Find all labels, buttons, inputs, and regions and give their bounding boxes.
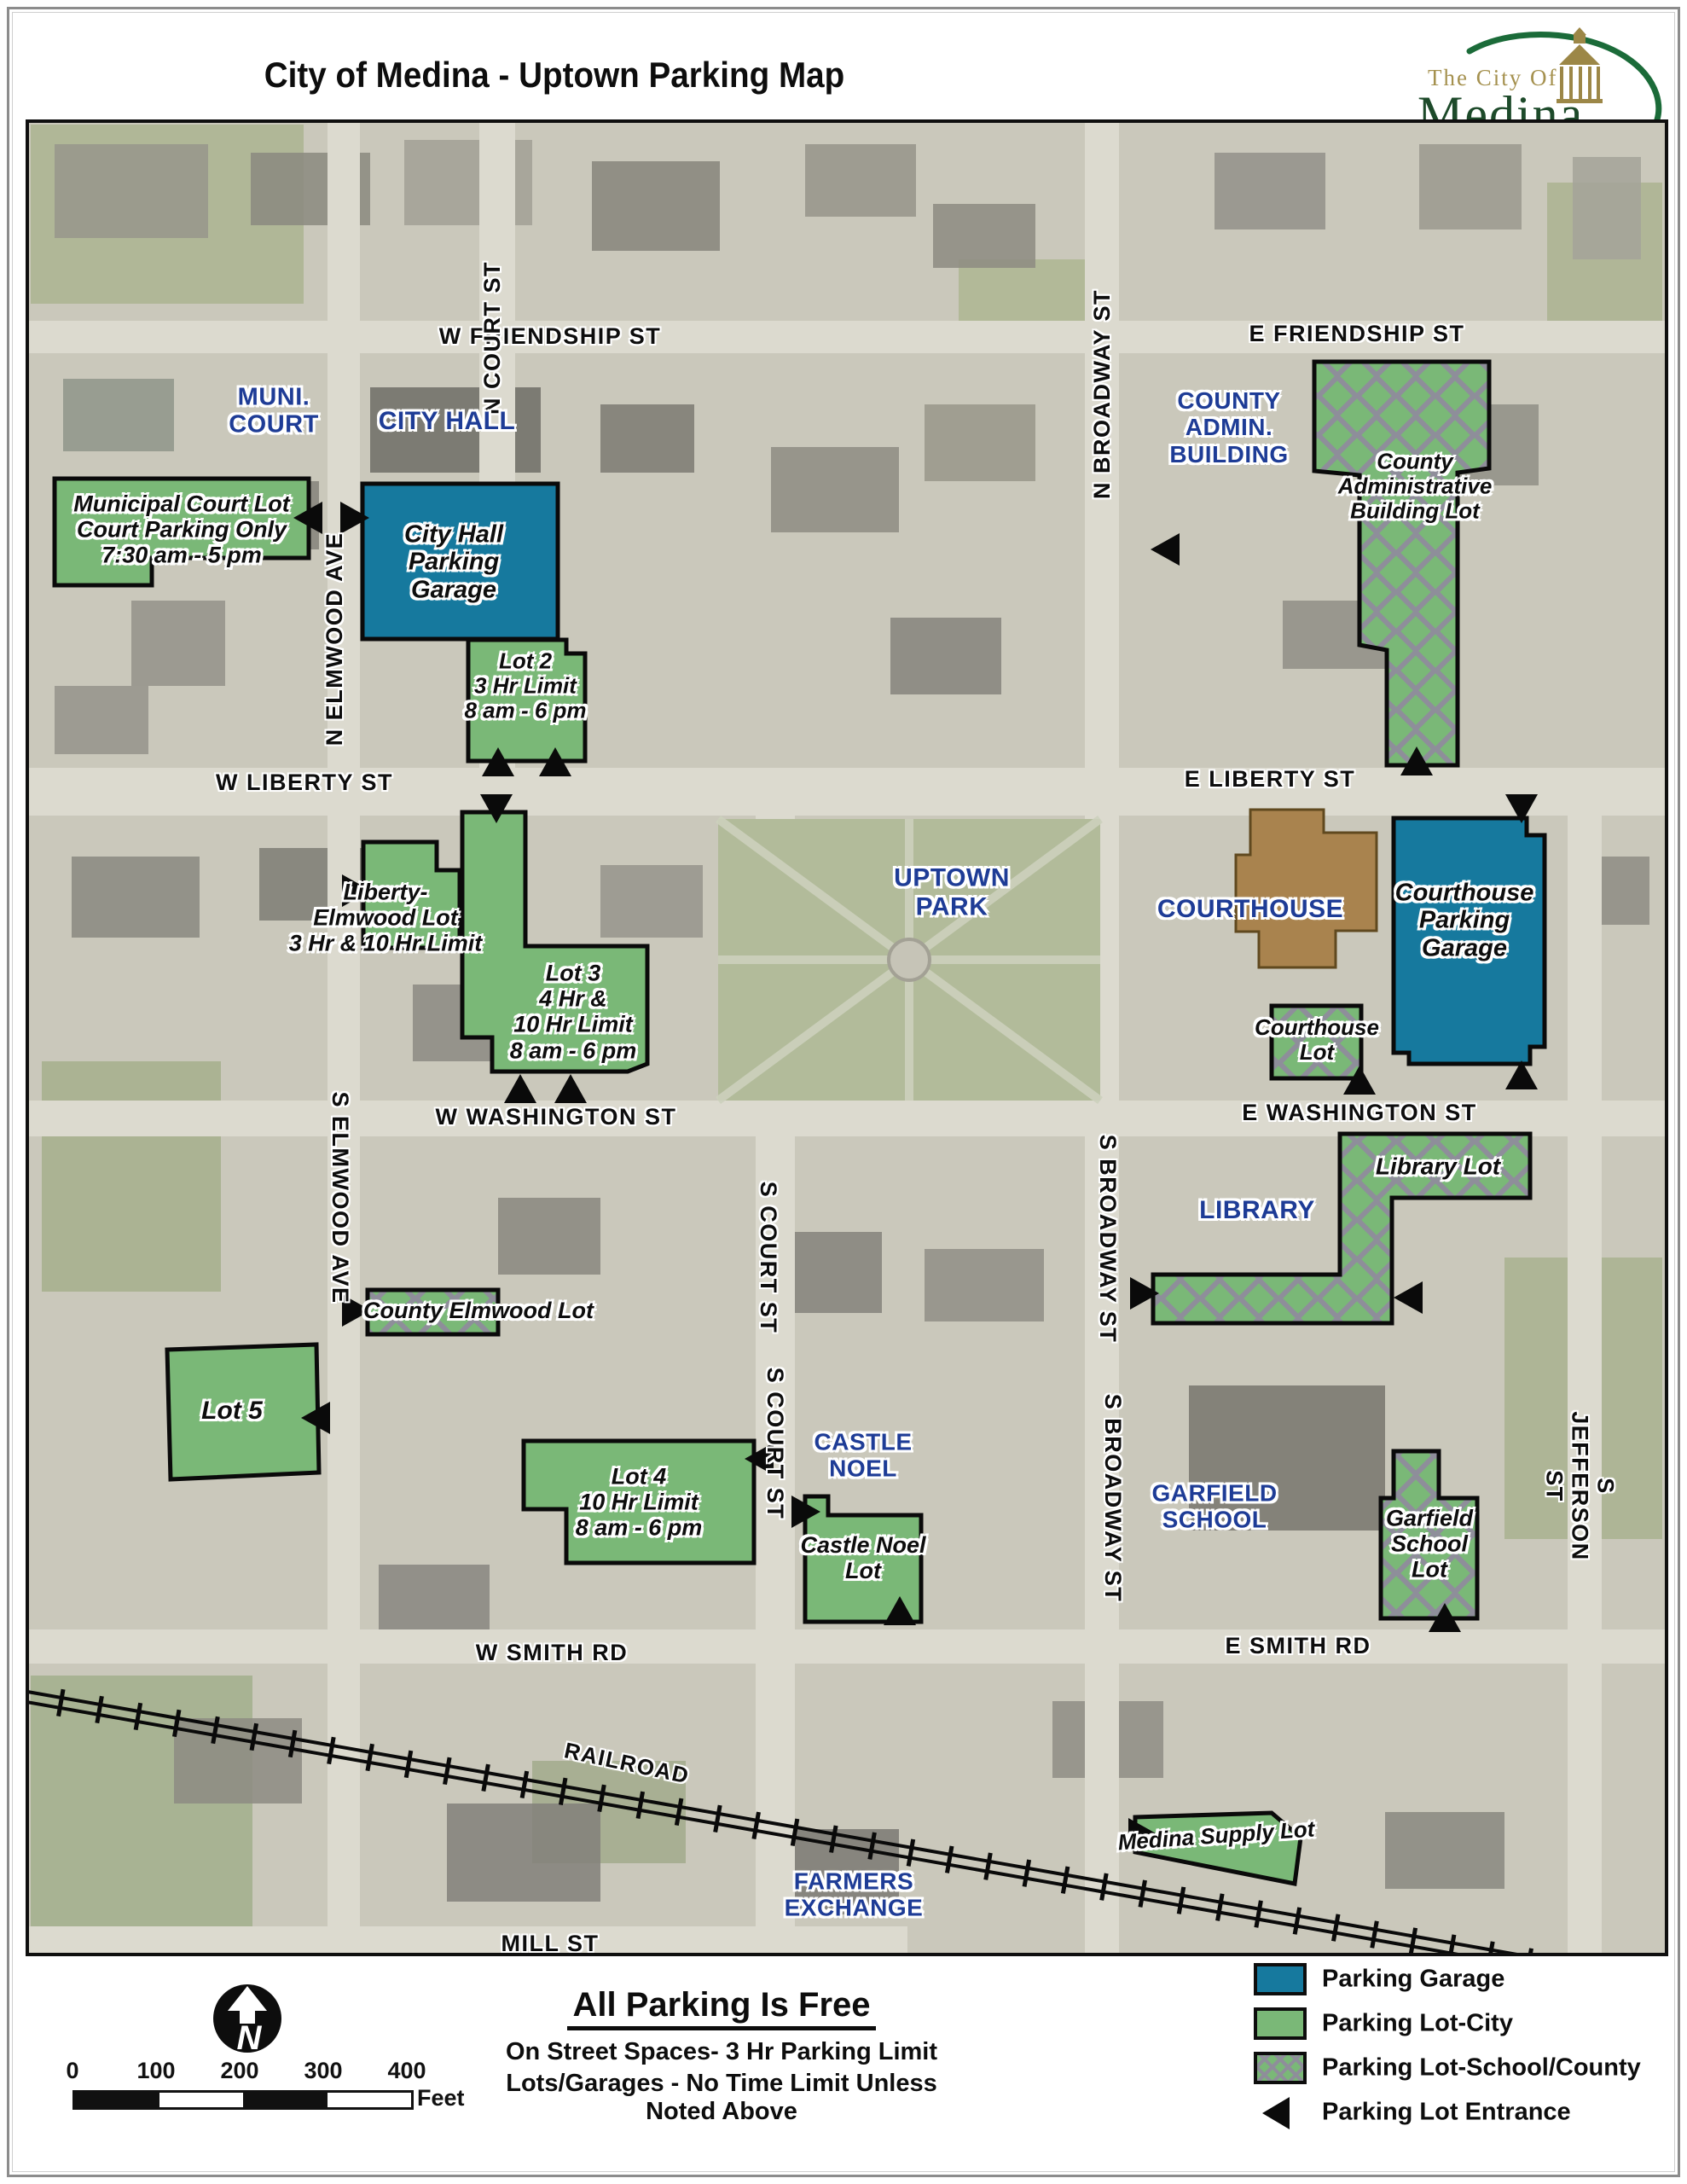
- legend-city-lot-swatch: [1254, 2007, 1307, 2040]
- legend-row-city-lot: Parking Lot-City: [1238, 2001, 1682, 2046]
- scale-unit: Feet: [417, 2085, 465, 2111]
- page-title: City of Medina - Uptown Parking Map: [264, 55, 845, 96]
- city-hall-parking-garage-label: City Hall Parking Garage: [404, 520, 503, 603]
- legend-county-lot-label: Parking Lot-School/County: [1322, 2054, 1641, 2082]
- place-label-county-admin-building: COUNTY ADMIN. BUILDING: [1169, 387, 1288, 468]
- garfield-school-lot-label: Garfield School Lot: [1386, 1506, 1473, 1583]
- street-label-s-broadway-st-2: S BROADWAY ST: [1100, 1394, 1126, 1603]
- place-label-castle-noel: CASTLE NOEL: [815, 1429, 913, 1483]
- street-label-s-elmwood-ave: S ELMWOOD AVE: [328, 1092, 353, 1304]
- map: W FRIENDSHIP STE FRIENDSHIP STW LIBERTY …: [26, 119, 1668, 1956]
- street-label-n-elmwood-ave: N ELMWOOD AVE: [322, 532, 347, 746]
- place-label-city-hall: CITY HALL: [379, 407, 516, 436]
- scale-segment: [159, 2093, 244, 2107]
- liberty-elmwood-lot-label: Liberty- Elmwood Lot 3 Hr & 10 Hr Limit: [289, 880, 483, 957]
- street-label-w-smith-rd: W SMITH RD: [476, 1640, 628, 1665]
- legend-row-county-lot: Parking Lot-School/County: [1238, 2046, 1682, 2090]
- legend: Parking Garage Parking Lot-City Parking …: [1238, 1957, 1682, 2135]
- scale-segment: [243, 2093, 328, 2107]
- street-label-s-court-st-2: S COURT ST: [762, 1368, 788, 1520]
- north-arrow-icon: N: [210, 1979, 287, 2065]
- county-elmwood-lot-label: County Elmwood Lot: [363, 1298, 594, 1323]
- street-label-n-court-st: N COURT ST: [479, 261, 505, 415]
- place-label-muni-court: MUNI. COURT: [229, 384, 319, 439]
- street-label-e-washington-st: E WASHINGTON ST: [1242, 1100, 1477, 1125]
- street-label-n-broadway-st: N BROADWAY ST: [1089, 289, 1115, 499]
- place-label-garfield-school: GARFIELD SCHOOL: [1151, 1480, 1277, 1534]
- parking-notes-line2: Lots/Garages - No Time Limit Unless Note…: [474, 2070, 969, 2126]
- parking-notes: All Parking Is Free On Street Spaces- 3 …: [474, 1986, 969, 2126]
- street-label-w-friendship-st: W FRIENDSHIP ST: [439, 323, 662, 349]
- street-label-mill-st: MILL ST: [501, 1931, 600, 1956]
- legend-row-garage: Parking Garage: [1238, 1957, 1682, 2001]
- courthouse-parking-garage-label: Courthouse Parking Garage: [1395, 879, 1534, 961]
- scale-bar-segments: [72, 2090, 414, 2110]
- place-label-farmers-exchange: FARMERS EXCHANGE: [785, 1868, 924, 1922]
- lot-2-label: Lot 2 3 Hr Limit 8 am - 6 pm: [464, 648, 586, 723]
- legend-county-lot-swatch: [1254, 2052, 1307, 2084]
- legend-garage-label: Parking Garage: [1322, 1966, 1504, 1994]
- legend-row-entrance: Parking Lot Entrance: [1238, 2090, 1682, 2135]
- street-label-e-liberty-st: E LIBERTY ST: [1185, 766, 1356, 792]
- medina-supply-lot-label: Medina Supply Lot: [1117, 1816, 1316, 1855]
- scale-tick: 0: [66, 2058, 78, 2084]
- castle-noel-lot-label: Castle Noel Lot: [800, 1532, 925, 1583]
- scale-tick: 400: [387, 2058, 426, 2084]
- lot-4-label: Lot 4 10 Hr Limit 8 am - 6 pm: [576, 1464, 703, 1542]
- place-label-library: LIBRARY: [1199, 1196, 1315, 1225]
- street-label-e-friendship-st: E FRIENDSHIP ST: [1249, 321, 1464, 346]
- place-label-uptown-park: UPTOWN PARK: [894, 863, 1010, 921]
- legend-entrance-label: Parking Lot Entrance: [1322, 2099, 1571, 2127]
- legend-city-lot-label: Parking Lot-City: [1322, 2010, 1513, 2038]
- street-label-s-court-st-1: S COURT ST: [756, 1182, 781, 1334]
- lot-3-label: Lot 3 4 Hr & 10 Hr Limit 8 am - 6 pm: [510, 961, 637, 1064]
- parking-notes-line1: On Street Spaces- 3 Hr Parking Limit: [474, 2038, 969, 2066]
- scale-segment: [328, 2093, 412, 2107]
- library-lot-label: Library Lot: [1376, 1153, 1500, 1179]
- parking-notes-heading: All Parking Is Free: [567, 1986, 875, 2030]
- municipal-court-lot-label: Municipal Court Lot Court Parking Only 7…: [73, 491, 289, 569]
- place-label-courthouse: COURTHOUSE: [1157, 895, 1343, 924]
- scale-bar: 0 100 200 300 400 Feet: [72, 2058, 482, 2119]
- north-label: N: [237, 2019, 263, 2057]
- scale-tick: 200: [220, 2058, 258, 2084]
- lot-5-label: Lot 5: [201, 1397, 263, 1426]
- legend-garage-swatch: [1254, 1963, 1307, 1995]
- scale-segment: [75, 2093, 159, 2107]
- scale-tick: 100: [136, 2058, 175, 2084]
- street-label-s-broadway-st-1: S BROADWAY ST: [1095, 1135, 1121, 1344]
- street-label-w-washington-st: W WASHINGTON ST: [436, 1104, 677, 1130]
- street-label-s-jefferson-st: S JEFFERSON ST: [1541, 1411, 1619, 1561]
- scale-tick: 300: [304, 2058, 342, 2084]
- courthouse-lot-label: Courthouse Lot: [1255, 1015, 1379, 1065]
- county-administrative-building-lot-label: County Administrative Building Lot: [1338, 449, 1493, 523]
- page: City of Medina - Uptown Parking Map The …: [0, 0, 1687, 2184]
- street-label-w-liberty-st: W LIBERTY ST: [216, 770, 393, 795]
- legend-entrance-arrow-icon: [1262, 2097, 1290, 2129]
- street-label-railroad: RAILROAD: [562, 1738, 692, 1788]
- street-label-e-smith-rd: E SMITH RD: [1225, 1633, 1371, 1658]
- map-labels: W FRIENDSHIP STE FRIENDSHIP STW LIBERTY …: [29, 123, 1665, 1953]
